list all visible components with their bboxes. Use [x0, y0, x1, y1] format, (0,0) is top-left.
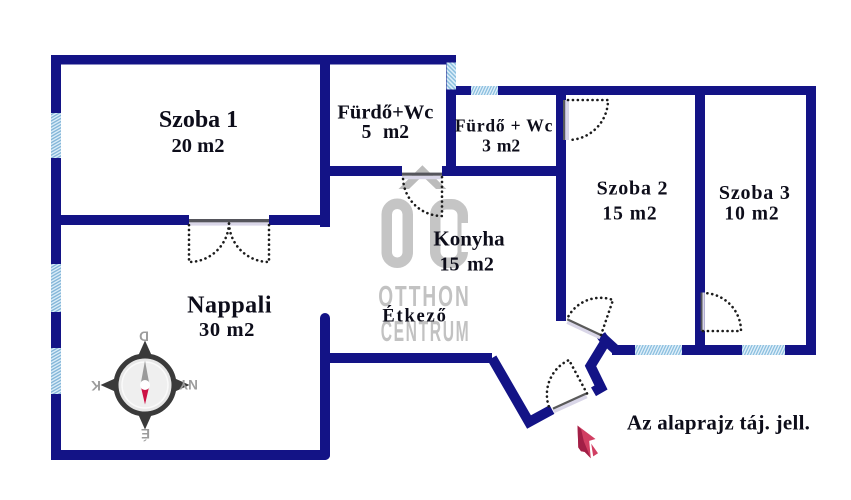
svg-text:20 m2: 20 m2: [172, 135, 225, 157]
svg-text:Szoba 3: Szoba 3: [719, 182, 791, 204]
svg-text:K: K: [91, 378, 101, 393]
svg-text:Az alaprajz táj. jell.: Az alaprajz táj. jell.: [627, 411, 810, 435]
svg-text:15 m2: 15 m2: [602, 203, 657, 224]
svg-text:10 m2: 10 m2: [724, 203, 779, 224]
svg-text:Fürdő+Wc: Fürdő+Wc: [337, 102, 433, 124]
svg-text:Konyha: Konyha: [433, 227, 505, 251]
svg-text:3m2: 3m2: [482, 136, 520, 156]
svg-text:15m2: 15m2: [440, 254, 494, 276]
svg-text:NY: NY: [179, 377, 198, 392]
svg-text:Szoba 1: Szoba 1: [159, 107, 238, 133]
svg-text:D: D: [139, 329, 149, 344]
svg-text:Nappali: Nappali: [187, 293, 272, 319]
svg-text:Étkező: Étkező: [382, 305, 447, 327]
svg-text:30 m2: 30 m2: [199, 319, 255, 341]
svg-text:É: É: [141, 426, 150, 441]
svg-text:Szoba 2: Szoba 2: [597, 178, 669, 200]
svg-text:Fürdő + Wc: Fürdő + Wc: [455, 116, 553, 136]
svg-text:5m2: 5m2: [362, 122, 409, 143]
